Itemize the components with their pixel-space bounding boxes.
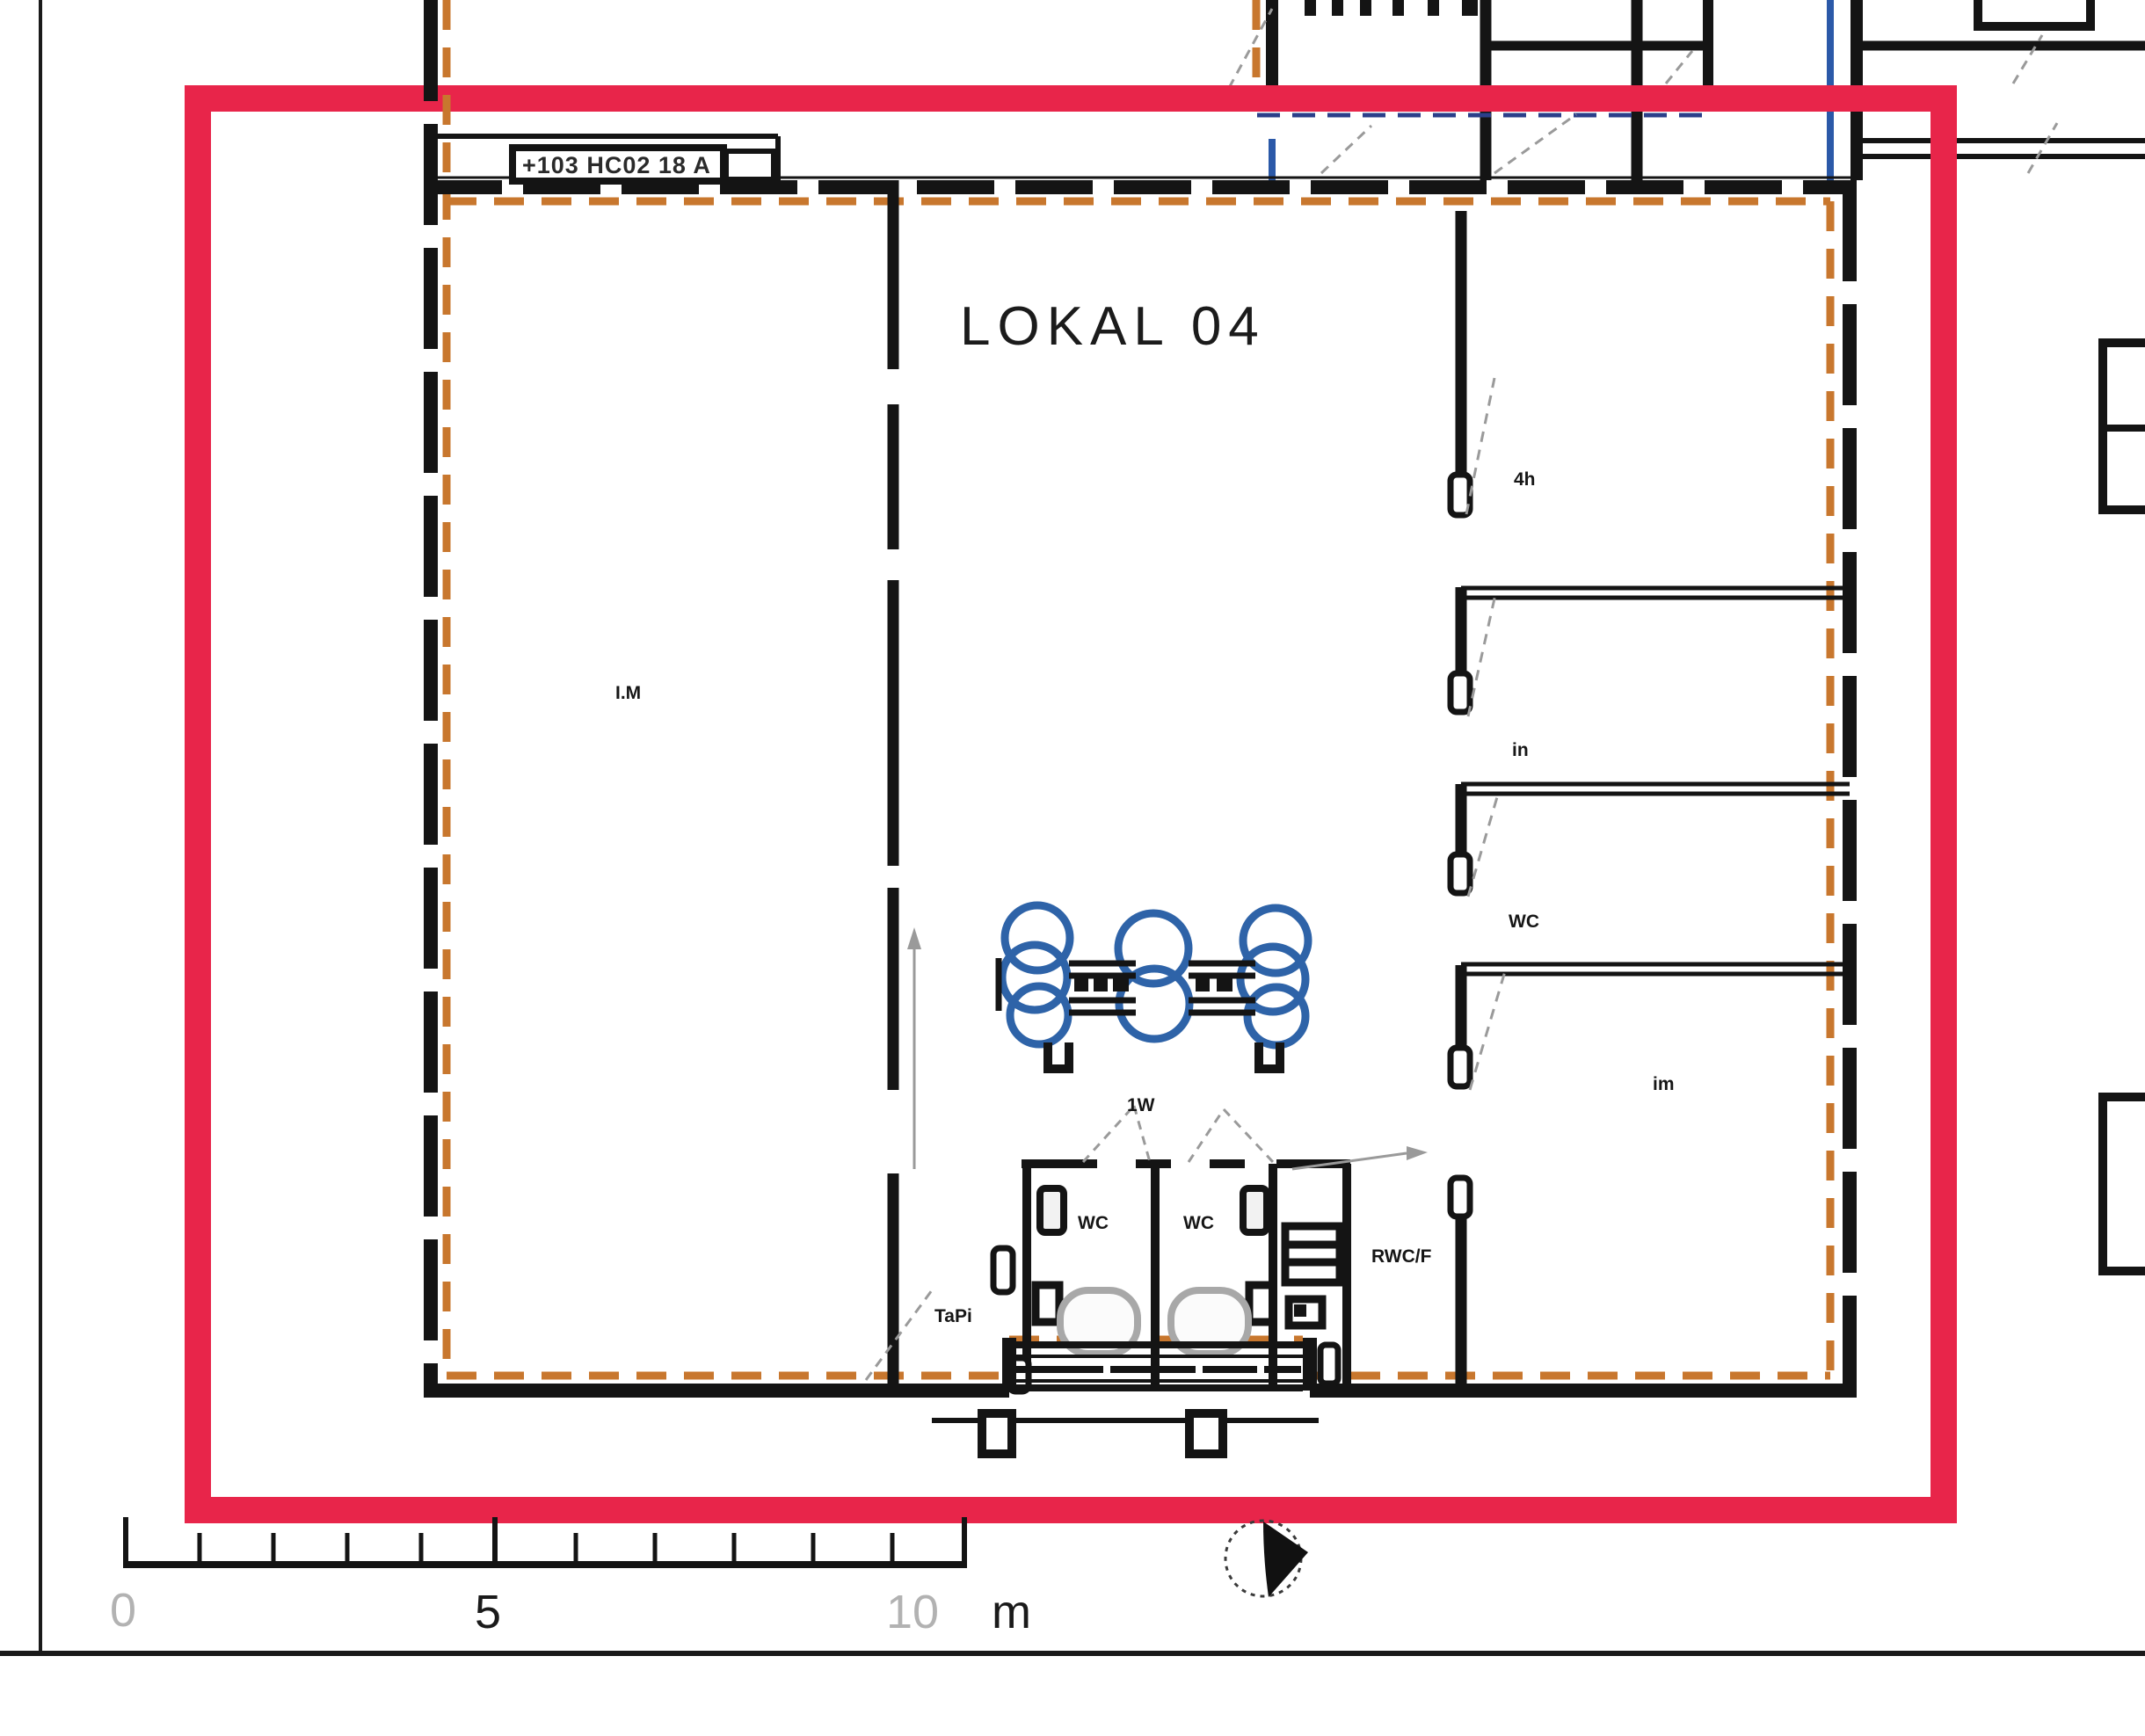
room-label-main: I.M — [615, 683, 641, 703]
annotation-arrows — [907, 927, 1428, 1169]
room-label-office-top: 4h — [1514, 469, 1536, 490]
room-label-office-mid: in — [1512, 740, 1529, 760]
entrance-sign-strip: +103 HC02 18 A — [425, 136, 778, 181]
room-label-wc-right: WC — [1183, 1213, 1214, 1233]
chair-circle — [1247, 987, 1305, 1045]
chair-circle — [1119, 969, 1189, 1039]
scale-ticks-minor — [200, 1533, 892, 1565]
service-room-fixtures — [1285, 1226, 1340, 1326]
floorplan-drawing: +103 HC02 18 A — [0, 0, 2145, 1736]
room-label-stair: TaPi — [934, 1306, 972, 1326]
chair-circle — [1010, 986, 1068, 1044]
right-edge-partial-rooms — [2103, 343, 2145, 1271]
room-label-office-low: WC — [1509, 912, 1539, 932]
scale-label-0: 0 — [110, 1584, 136, 1637]
furniture-table-group — [999, 905, 1308, 1069]
entrance-sign-text: +103 HC02 18 A — [522, 152, 711, 178]
compass-needle-icon — [1263, 1522, 1308, 1597]
wc-cluster — [866, 1106, 1350, 1391]
scale-ticks-major — [126, 1517, 964, 1565]
table-feet — [1048, 1042, 1280, 1069]
sheet-frame — [0, 0, 2145, 1653]
north-arrow — [1225, 1521, 1308, 1597]
scale-label-10: 10 — [886, 1586, 939, 1638]
column — [1189, 1413, 1223, 1454]
floorplan-canvas: +103 HC02 18 A — [0, 0, 2145, 1736]
arrowhead-up — [907, 927, 921, 949]
room-labels: LOKAL 04 I.M 4h in WC im WC WC RWC/F TaP… — [615, 296, 1675, 1326]
entrance-jamb-right — [1303, 1338, 1317, 1391]
scale-label-5: 5 — [475, 1586, 501, 1638]
arrowhead-right — [1407, 1146, 1428, 1160]
scale-bar: 0 5 10 m — [110, 1517, 1031, 1638]
room-label-storage: im — [1653, 1074, 1675, 1094]
wc-door-swings — [1083, 1106, 1273, 1162]
door-note-label: 1W — [1127, 1095, 1155, 1115]
room-label-rwc: RWC/F — [1371, 1246, 1432, 1267]
clipped-text-marks — [1305, 0, 1478, 16]
entrance-jamb-left — [1002, 1338, 1016, 1391]
room-label-wc-left: WC — [1078, 1213, 1109, 1233]
office-partition-wall — [1451, 211, 1470, 1396]
unit-title: LOKAL 04 — [960, 296, 1266, 357]
scale-unit-label: m — [992, 1586, 1031, 1638]
column — [982, 1413, 1012, 1454]
